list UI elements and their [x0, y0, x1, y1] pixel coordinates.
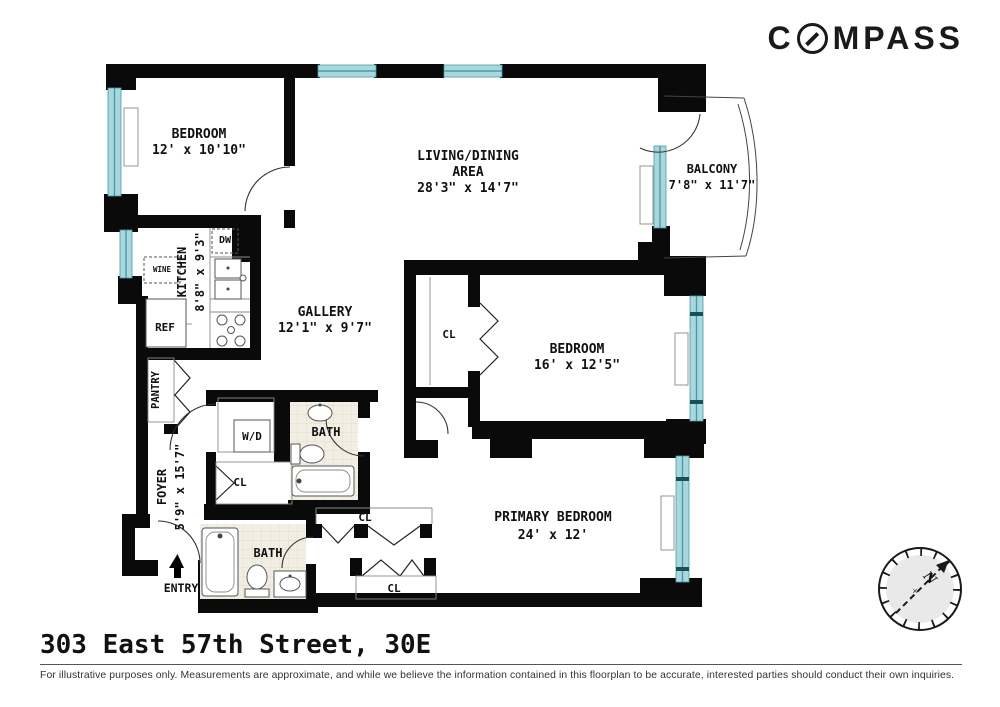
living-label-1: LIVING/DINING — [417, 149, 519, 164]
pantry-label: PANTRY — [150, 370, 162, 409]
bedroom2-label: BEDROOM — [550, 342, 605, 357]
floor-plan: BEDROOM 12' x 10'10" LIVING/DINING AREA … — [0, 0, 1000, 707]
divider — [40, 664, 962, 665]
page-title: 303 East 57th Street, 30E — [40, 630, 431, 660]
living-dims: 28'3" x 14'7" — [417, 181, 519, 196]
wine-label: WINE — [153, 265, 172, 274]
gallery-dims: 12'1" x 9'7" — [278, 321, 372, 336]
primary-bedroom-label: PRIMARY BEDROOM — [494, 510, 612, 525]
gallery-label: GALLERY — [298, 305, 353, 320]
faucet-icon — [240, 275, 246, 281]
washer-dryer-label: W/D — [242, 430, 262, 443]
compass-rose: N × — [879, 548, 961, 630]
closet-primary-top-label: CL — [358, 511, 372, 524]
bedroom2-dims: 16' x 12'5" — [534, 358, 620, 373]
stove-burners — [217, 315, 245, 346]
entry-label: ENTRY — [164, 581, 199, 595]
kitchen-dims: 8'8" x 9'3" — [193, 232, 207, 311]
closet-primary-bottom-label: CL — [387, 582, 401, 595]
closet-bedroom2-label: CL — [442, 328, 456, 341]
bedroom1-dims: 12' x 10'10" — [152, 143, 246, 158]
bath-lower-label: BATH — [254, 546, 283, 560]
living-label-2: AREA — [452, 165, 483, 180]
disclaimer: For illustrative purposes only. Measurem… — [40, 670, 954, 681]
kitchen-label: KITCHEN — [175, 247, 189, 298]
bath-upper-toilet-tank — [291, 444, 300, 464]
closet-foyer-label: CL — [233, 476, 247, 489]
balcony-dims: 7'8" x 11'7" — [669, 178, 756, 192]
balcony-label: BALCONY — [687, 162, 738, 176]
foyer-label: FOYER — [155, 468, 169, 505]
primary-bedroom-dims: 24' x 12' — [518, 528, 588, 543]
dishwasher-label: DW — [219, 235, 232, 246]
entry-arrow-icon — [169, 554, 184, 578]
bath-upper-label: BATH — [312, 425, 341, 439]
bath-upper-toilet — [300, 445, 324, 463]
bedroom1-label: BEDROOM — [172, 127, 227, 142]
foyer-dims: 5'9" x 15'7" — [173, 444, 187, 531]
compass-center-mark: × — [912, 586, 917, 596]
bath-upper-sink — [308, 405, 332, 421]
fridge-label: REF — [155, 321, 175, 334]
balcony-railing — [664, 96, 757, 258]
bath-lower-toilet-tank — [245, 589, 269, 597]
bath-lower-toilet — [247, 565, 267, 589]
